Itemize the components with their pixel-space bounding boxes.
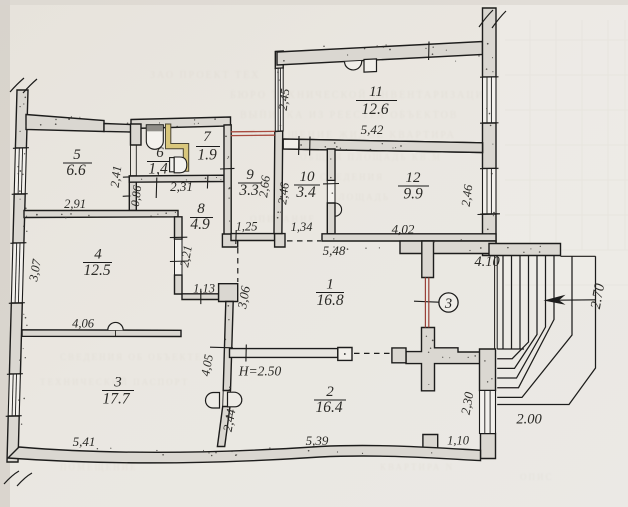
svg-text:4,06: 4,06 <box>72 317 95 331</box>
svg-text:2,41: 2,41 <box>108 165 125 188</box>
svg-text:3: 3 <box>113 375 122 391</box>
svg-text:2.00: 2.00 <box>516 412 542 428</box>
svg-text:3: 3 <box>444 296 452 312</box>
svg-text:ОПИС: ОПИС <box>520 472 554 482</box>
svg-text:ПЛОЩАДЬ: ПЛОЩАДЬ <box>330 192 390 202</box>
svg-text:1: 1 <box>326 277 334 293</box>
svg-text:ВЫПИСКА ИЗ РЕЕСТРА ОБЪЕКТОВ: ВЫПИСКА ИЗ РЕЕСТРА ОБЪЕКТОВ <box>240 110 458 121</box>
svg-text:17.7: 17.7 <box>102 391 130 408</box>
svg-text:5,39: 5,39 <box>306 433 329 448</box>
svg-text:ОБЩАЯ ПЛОЩАДЬ КВ.М: ОБЩАЯ ПЛОЩАДЬ КВ.М <box>300 152 442 162</box>
svg-text:1.9: 1.9 <box>197 147 217 164</box>
svg-text:12.6: 12.6 <box>361 101 388 118</box>
svg-text:ПОМЕЩЕНИЕ: ПОМЕЩЕНИЕ <box>60 462 138 472</box>
svg-text:5: 5 <box>73 147 81 163</box>
svg-text:2,45: 2,45 <box>276 88 293 111</box>
svg-text:4,02: 4,02 <box>392 222 415 237</box>
svg-text:8: 8 <box>197 201 205 217</box>
svg-text:ЗАО ПРОЕКТ ТЕХ: ЗАО ПРОЕКТ ТЕХ <box>150 70 260 81</box>
svg-text:2,46: 2,46 <box>275 181 292 205</box>
svg-text:1,4: 1,4 <box>148 161 168 178</box>
svg-text:4.10: 4.10 <box>474 254 500 270</box>
svg-text:6: 6 <box>156 145 164 161</box>
svg-text:2,46: 2,46 <box>459 183 476 207</box>
svg-text:1,34: 1,34 <box>291 220 313 234</box>
svg-text:12.5: 12.5 <box>83 262 110 279</box>
svg-text:10: 10 <box>300 169 316 185</box>
svg-text:2,31: 2,31 <box>170 179 193 194</box>
svg-text:16.4: 16.4 <box>315 399 342 416</box>
svg-text:9: 9 <box>246 167 254 183</box>
svg-text:1,25: 1,25 <box>236 220 258 234</box>
svg-text:H=2.50: H=2.50 <box>238 364 282 379</box>
svg-text:4: 4 <box>94 247 102 263</box>
svg-text:СВЕДЕНИЯ ОБ ОБЪЕКТЕ: СВЕДЕНИЯ ОБ ОБЪЕКТЕ <box>60 352 202 362</box>
svg-text:1,10: 1,10 <box>447 434 470 448</box>
svg-text:5,42: 5,42 <box>361 122 384 137</box>
svg-text:12: 12 <box>406 170 422 186</box>
svg-text:4.9: 4.9 <box>190 216 210 233</box>
svg-text:2,66: 2,66 <box>256 174 273 198</box>
svg-text:2,91: 2,91 <box>64 197 86 211</box>
svg-text:5,48: 5,48 <box>323 243 346 258</box>
svg-text:11: 11 <box>369 84 383 100</box>
svg-text:2: 2 <box>326 384 334 400</box>
svg-text:БЮРО ТЕХНИЧЕСКОЙ ИНВЕНТАРИЗАЦИ: БЮРО ТЕХНИЧЕСКОЙ ИНВЕНТАРИЗАЦИИ <box>230 89 494 101</box>
svg-text:9.9: 9.9 <box>403 186 423 203</box>
svg-text:6.6: 6.6 <box>66 162 86 179</box>
svg-text:0,86: 0,86 <box>128 185 144 208</box>
svg-text:3.4: 3.4 <box>295 184 316 201</box>
svg-text:5,41: 5,41 <box>73 434 96 449</box>
svg-text:1,13: 1,13 <box>193 282 215 296</box>
svg-text:КВАРТИРА N: КВАРТИРА N <box>380 462 454 472</box>
svg-text:16.8: 16.8 <box>316 292 343 309</box>
